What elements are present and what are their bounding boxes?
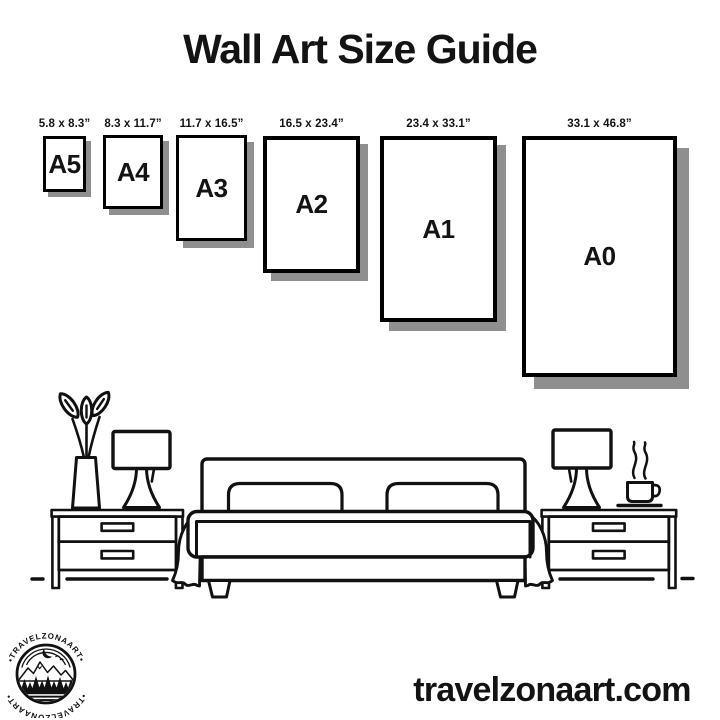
size-a5-paper: A5 — [43, 136, 86, 192]
vase — [73, 458, 100, 509]
size-a2-label: A2 — [295, 189, 327, 220]
lamp-shade — [113, 432, 170, 469]
size-a3-dimensions: 11.7 x 16.5” — [171, 118, 252, 130]
size-a3-paper: A3 — [176, 135, 247, 241]
potted-plant — [56, 389, 113, 508]
size-a1-paper: A1 — [380, 136, 497, 322]
drawer-handle — [102, 523, 134, 530]
size-a0-paper: A0 — [522, 136, 677, 377]
drawer-handle — [102, 551, 134, 558]
nightstand-right — [542, 510, 677, 588]
size-a0-label: A0 — [583, 241, 615, 272]
double-bed — [173, 459, 553, 597]
website-url: travelzonaart.com — [402, 673, 702, 707]
nightstand-left — [52, 510, 183, 588]
bed-base — [202, 557, 525, 581]
steam — [633, 442, 636, 478]
coffee-cup — [618, 442, 661, 506]
size-a1-label: A1 — [422, 214, 454, 245]
lamp-shade — [553, 430, 611, 468]
bed-leg — [209, 581, 231, 598]
size-a4-dimensions: 8.3 x 11.7” — [93, 118, 173, 130]
drawer-handle — [593, 551, 625, 558]
mattress — [188, 512, 533, 558]
table-lamp-left — [113, 432, 170, 508]
size-a0-dimensions: 33.1 x 46.8” — [554, 118, 645, 130]
leaf — [81, 397, 92, 424]
size-a2-paper: A2 — [263, 136, 360, 273]
size-a3-label: A3 — [195, 173, 227, 204]
page-title: Wall Art Size Guide — [0, 27, 720, 72]
size-a1-dimensions: 23.4 x 33.1” — [393, 118, 484, 130]
table-lamp-right — [553, 430, 611, 508]
brand-logo: •TRAVELZONAART• •TRAVELZONAART• — [2, 620, 92, 718]
drawer-handle — [593, 523, 625, 530]
size-a4-label: A4 — [117, 157, 149, 188]
bedroom-illustration — [0, 380, 720, 605]
size-a4-paper: A4 — [103, 135, 163, 209]
leaf — [56, 390, 82, 420]
bed-leg — [497, 581, 519, 598]
steam — [644, 443, 647, 479]
size-a2-dimensions: 16.5 x 23.4” — [266, 118, 357, 130]
size-a5-label: A5 — [48, 149, 80, 180]
wall-art-size-guide: Wall Art Size Guide 5.8 x 8.3” 8.3 x 11.… — [0, 0, 720, 720]
